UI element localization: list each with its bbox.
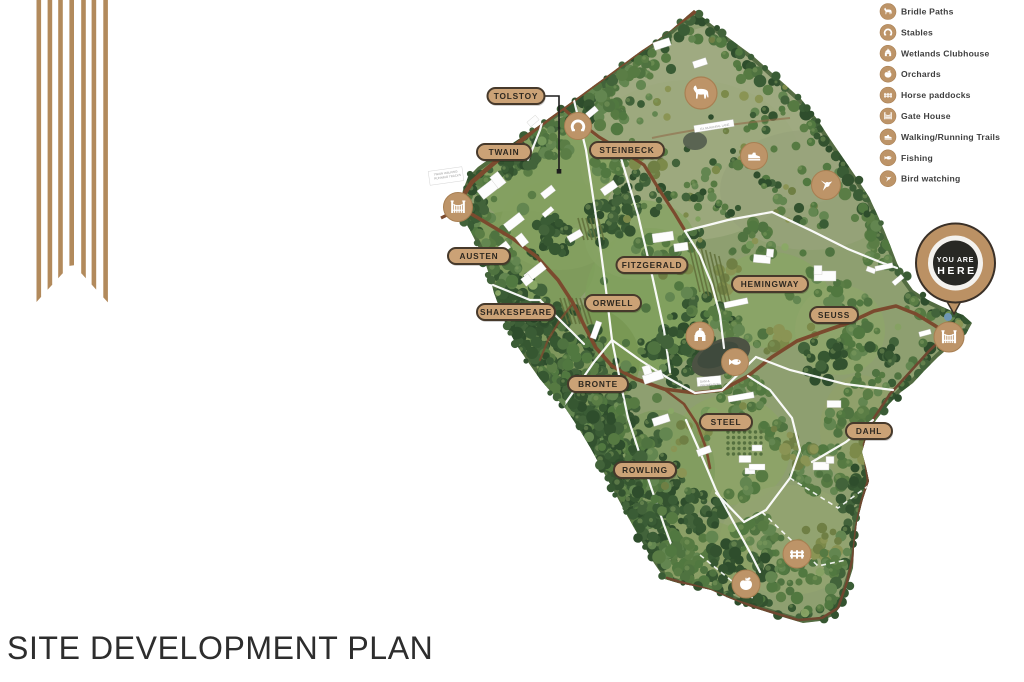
svg-text:SHAKESPEARE: SHAKESPEARE — [480, 307, 552, 317]
svg-text:Orchards: Orchards — [901, 69, 941, 79]
svg-text:HEMINGWAY: HEMINGWAY — [741, 279, 800, 289]
svg-text:Walking/Running Trails: Walking/Running Trails — [901, 132, 1000, 142]
svg-text:Bird watching: Bird watching — [901, 174, 960, 184]
svg-text:YOU ARE: YOU ARE — [937, 255, 974, 264]
svg-text:ROWLING: ROWLING — [622, 465, 668, 475]
svg-text:SITE DEVELOPMENT PLAN: SITE DEVELOPMENT PLAN — [7, 630, 433, 666]
svg-text:Horse paddocks: Horse paddocks — [901, 90, 971, 100]
svg-text:Stables: Stables — [901, 27, 933, 37]
svg-text:STEINBECK: STEINBECK — [599, 145, 654, 155]
svg-text:AUSTEN: AUSTEN — [460, 251, 499, 261]
svg-text:TWAIN: TWAIN — [489, 147, 520, 157]
svg-text:Bridle Paths: Bridle Paths — [901, 7, 954, 17]
svg-text:HERE: HERE — [937, 265, 977, 277]
svg-text:TOLSTOY: TOLSTOY — [494, 91, 538, 101]
svg-text:Wetlands Clubhouse: Wetlands Clubhouse — [901, 48, 989, 58]
svg-text:BRONTE: BRONTE — [578, 379, 618, 389]
svg-text:STEEL: STEEL — [711, 417, 742, 427]
svg-text:Fishing: Fishing — [901, 153, 933, 163]
svg-text:DAHL: DAHL — [856, 426, 882, 436]
svg-text:SEUSS: SEUSS — [818, 310, 850, 320]
svg-text:ORWELL: ORWELL — [593, 298, 634, 308]
svg-text:Gate House: Gate House — [901, 111, 951, 121]
svg-text:FITZGERALD: FITZGERALD — [622, 260, 683, 270]
